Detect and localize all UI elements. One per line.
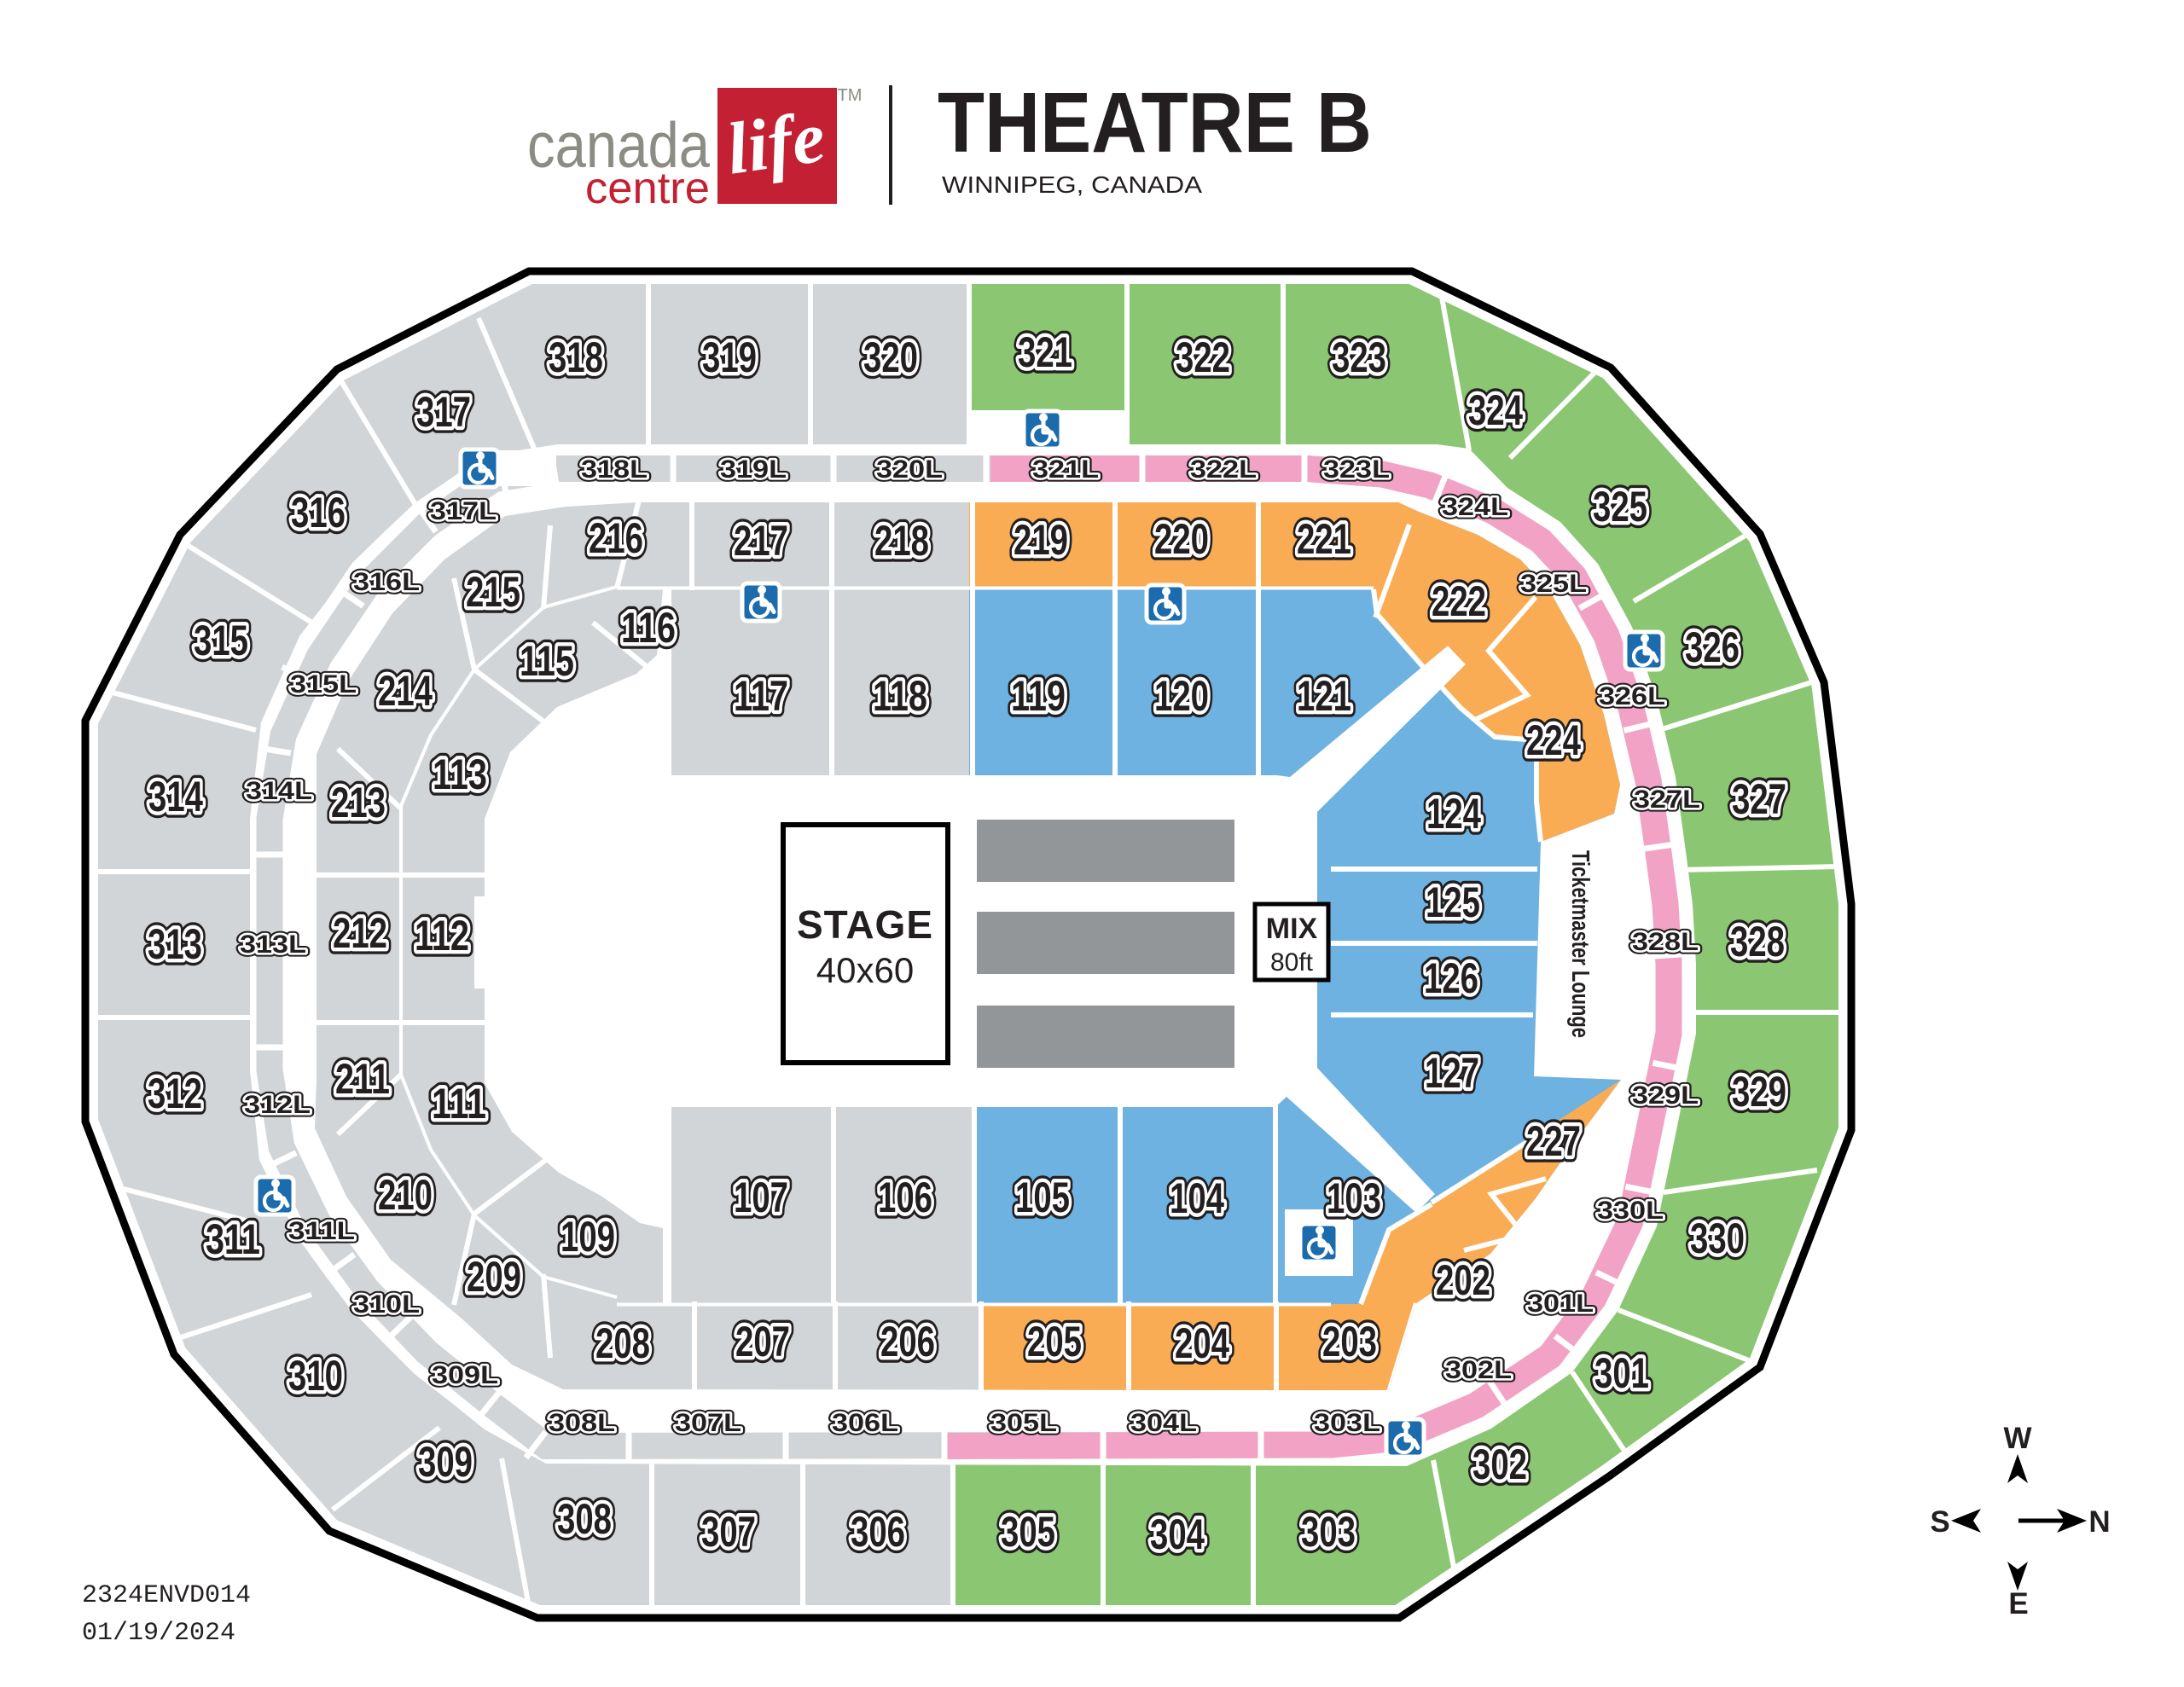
svg-text:MIX: MIX xyxy=(1266,913,1318,945)
svg-text:307: 307 xyxy=(701,1508,756,1556)
svg-text:309L: 309L xyxy=(432,1361,498,1389)
svg-text:208: 208 xyxy=(595,1319,650,1367)
svg-text:310: 310 xyxy=(288,1352,343,1400)
svg-text:330: 330 xyxy=(1690,1215,1745,1262)
svg-text:221: 221 xyxy=(1297,515,1351,563)
svg-text:106: 106 xyxy=(878,1174,932,1221)
svg-text:318L: 318L xyxy=(581,455,648,484)
svg-text:207: 207 xyxy=(735,1318,790,1365)
svg-text:216: 216 xyxy=(589,514,643,562)
svg-text:306: 306 xyxy=(851,1508,905,1556)
svg-text:117: 117 xyxy=(734,672,788,720)
svg-text:320L: 320L xyxy=(876,455,943,484)
svg-text:330L: 330L xyxy=(1597,1197,1664,1225)
svg-text:302: 302 xyxy=(1472,1441,1527,1488)
svg-text:324L: 324L xyxy=(1442,493,1508,521)
svg-text:326L: 326L xyxy=(1599,682,1665,710)
svg-text:316: 316 xyxy=(291,489,346,536)
svg-text:317L: 317L xyxy=(430,497,497,525)
svg-text:125: 125 xyxy=(1426,878,1480,926)
svg-text:211: 211 xyxy=(335,1055,390,1103)
svg-text:205: 205 xyxy=(1027,1318,1082,1365)
svg-text:326: 326 xyxy=(1685,623,1740,671)
svg-text:01/19/2024: 01/19/2024 xyxy=(82,1619,235,1648)
svg-text:E: E xyxy=(2008,1587,2028,1620)
svg-text:227: 227 xyxy=(1526,1117,1581,1165)
svg-text:115: 115 xyxy=(520,637,574,685)
svg-text:111: 111 xyxy=(432,1080,486,1128)
svg-text:324: 324 xyxy=(1468,386,1523,434)
svg-text:313L: 313L xyxy=(240,930,306,959)
svg-text:220: 220 xyxy=(1154,515,1209,563)
svg-text:309: 309 xyxy=(418,1438,473,1486)
svg-text:322: 322 xyxy=(1176,333,1230,381)
svg-text:329: 329 xyxy=(1732,1068,1786,1116)
svg-text:119: 119 xyxy=(1011,672,1066,720)
svg-text:316L: 316L xyxy=(353,568,420,596)
svg-text:S: S xyxy=(1930,1505,1949,1539)
svg-text:113: 113 xyxy=(433,751,487,798)
svg-text:314L: 314L xyxy=(246,777,312,805)
svg-text:329L: 329L xyxy=(1632,1081,1699,1110)
svg-text:328L: 328L xyxy=(1632,928,1699,956)
svg-text:204: 204 xyxy=(1175,1319,1229,1367)
svg-text:126: 126 xyxy=(1424,954,1478,1002)
svg-text:109: 109 xyxy=(561,1213,615,1261)
svg-text:217: 217 xyxy=(734,517,788,565)
svg-text:116: 116 xyxy=(621,604,676,652)
svg-text:212: 212 xyxy=(333,909,387,957)
svg-text:104: 104 xyxy=(1170,1174,1224,1222)
svg-text:80ft: 80ft xyxy=(1270,948,1314,977)
svg-text:304: 304 xyxy=(1150,1510,1205,1558)
svg-text:301L: 301L xyxy=(1527,1290,1594,1318)
svg-text:306L: 306L xyxy=(832,1409,898,1437)
svg-text:312L: 312L xyxy=(244,1091,311,1119)
svg-text:120: 120 xyxy=(1154,672,1209,720)
svg-text:311: 311 xyxy=(206,1215,260,1263)
svg-text:Ticketmaster Lounge: Ticketmaster Lounge xyxy=(1566,850,1594,1038)
svg-text:THEATRE B: THEATRE B xyxy=(938,75,1372,171)
svg-text:222: 222 xyxy=(1432,577,1486,625)
svg-text:107: 107 xyxy=(734,1174,788,1221)
svg-text:203: 203 xyxy=(1322,1318,1377,1365)
svg-text:310L: 310L xyxy=(353,1290,420,1319)
svg-text:224: 224 xyxy=(1526,716,1581,764)
svg-text:303L: 303L xyxy=(1314,1409,1380,1437)
svg-text:322L: 322L xyxy=(1190,455,1257,484)
svg-text:311L: 311L xyxy=(288,1217,355,1245)
svg-text:325: 325 xyxy=(1593,483,1647,530)
svg-text:centre: centre xyxy=(585,164,710,213)
svg-text:312: 312 xyxy=(148,1070,202,1117)
svg-text:319L: 319L xyxy=(720,455,787,484)
svg-text:315: 315 xyxy=(194,617,248,664)
svg-text:105: 105 xyxy=(1015,1174,1070,1221)
svg-text:320: 320 xyxy=(863,333,918,381)
svg-text:323: 323 xyxy=(1332,333,1386,381)
svg-text:206: 206 xyxy=(880,1318,935,1365)
svg-text:301: 301 xyxy=(1594,1349,1649,1397)
svg-text:WINNIPEG, CANADA: WINNIPEG, CANADA xyxy=(942,171,1202,198)
svg-text:313: 313 xyxy=(148,920,202,968)
svg-text:307L: 307L xyxy=(675,1409,741,1437)
svg-text:121: 121 xyxy=(1297,672,1351,720)
svg-text:314: 314 xyxy=(148,773,203,820)
svg-text:118: 118 xyxy=(873,672,927,720)
svg-text:317: 317 xyxy=(416,388,471,436)
svg-text:127: 127 xyxy=(1425,1049,1479,1097)
svg-text:TM: TM xyxy=(838,86,863,105)
svg-text:209: 209 xyxy=(467,1253,521,1301)
svg-text:103: 103 xyxy=(1327,1174,1381,1222)
svg-text:112: 112 xyxy=(415,912,469,959)
svg-text:315L: 315L xyxy=(290,670,357,699)
svg-text:40x60: 40x60 xyxy=(816,950,914,990)
svg-text:213: 213 xyxy=(331,779,386,826)
svg-text:2324ENVD014: 2324ENVD014 xyxy=(82,1581,251,1610)
svg-text:219: 219 xyxy=(1014,516,1068,564)
svg-text:124: 124 xyxy=(1426,790,1481,838)
svg-text:323L: 323L xyxy=(1323,455,1390,484)
svg-text:318: 318 xyxy=(549,333,603,381)
svg-text:304L: 304L xyxy=(1130,1409,1197,1437)
svg-text:308L: 308L xyxy=(549,1409,615,1437)
svg-text:life: life xyxy=(722,96,830,190)
svg-text:303: 303 xyxy=(1301,1508,1356,1556)
svg-text:319: 319 xyxy=(702,333,757,381)
svg-text:215: 215 xyxy=(466,568,520,616)
svg-text:302L: 302L xyxy=(1445,1356,1512,1384)
svg-text:325L: 325L xyxy=(1520,570,1587,598)
svg-text:308: 308 xyxy=(557,1495,612,1543)
svg-text:321: 321 xyxy=(1018,328,1072,376)
svg-text:218: 218 xyxy=(874,517,929,565)
svg-text:321L: 321L xyxy=(1032,455,1099,484)
svg-text:305L: 305L xyxy=(990,1409,1057,1437)
svg-text:327: 327 xyxy=(1732,775,1786,823)
svg-text:STAGE: STAGE xyxy=(797,902,933,947)
svg-text:305: 305 xyxy=(1001,1508,1055,1556)
svg-text:N: N xyxy=(2088,1505,2110,1539)
svg-text:327L: 327L xyxy=(1634,786,1700,814)
svg-text:202: 202 xyxy=(1436,1256,1490,1304)
svg-text:W: W xyxy=(2003,1422,2031,1455)
svg-text:328: 328 xyxy=(1730,918,1785,965)
svg-text:214: 214 xyxy=(378,667,433,715)
svg-text:210: 210 xyxy=(378,1171,433,1219)
